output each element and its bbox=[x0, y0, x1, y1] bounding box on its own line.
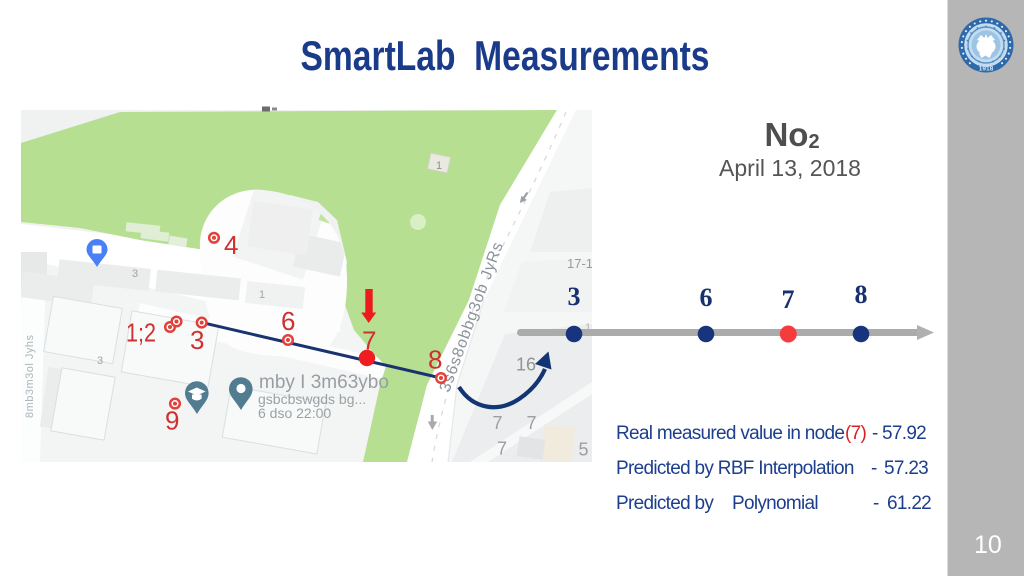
svg-text:7: 7 bbox=[782, 285, 795, 314]
svg-text:3: 3 bbox=[97, 355, 103, 367]
svg-text:8mb3m3ol Jyhs: 8mb3m3ol Jyhs bbox=[24, 334, 36, 418]
svg-text:1: 1 bbox=[259, 289, 265, 301]
svg-text:9: 9 bbox=[165, 406, 179, 436]
svg-text:7: 7 bbox=[527, 413, 537, 433]
svg-text:8: 8 bbox=[428, 345, 442, 375]
svg-text:mby I 3m63ybo: mby I 3m63ybo bbox=[259, 372, 389, 393]
svg-text:1;2: 1;2 bbox=[126, 318, 156, 348]
svg-text:3: 3 bbox=[568, 282, 581, 311]
svg-text:16: 16 bbox=[516, 355, 536, 375]
svg-text:1918: 1918 bbox=[979, 66, 994, 73]
svg-text:6: 6 bbox=[700, 283, 713, 312]
svg-text:7: 7 bbox=[497, 439, 507, 459]
svg-text:6: 6 bbox=[281, 306, 295, 336]
svg-text:6 dso 22:00: 6 dso 22:00 bbox=[258, 405, 331, 421]
svg-text:4: 4 bbox=[224, 230, 238, 260]
svg-text:3: 3 bbox=[190, 325, 204, 355]
svg-text:3: 3 bbox=[132, 268, 138, 280]
svg-text:7: 7 bbox=[493, 413, 503, 433]
svg-text:1: 1 bbox=[436, 160, 442, 172]
svg-text:5: 5 bbox=[579, 440, 589, 460]
svg-text:8: 8 bbox=[855, 280, 868, 309]
svg-text:17-1: 17-1 bbox=[567, 256, 593, 271]
